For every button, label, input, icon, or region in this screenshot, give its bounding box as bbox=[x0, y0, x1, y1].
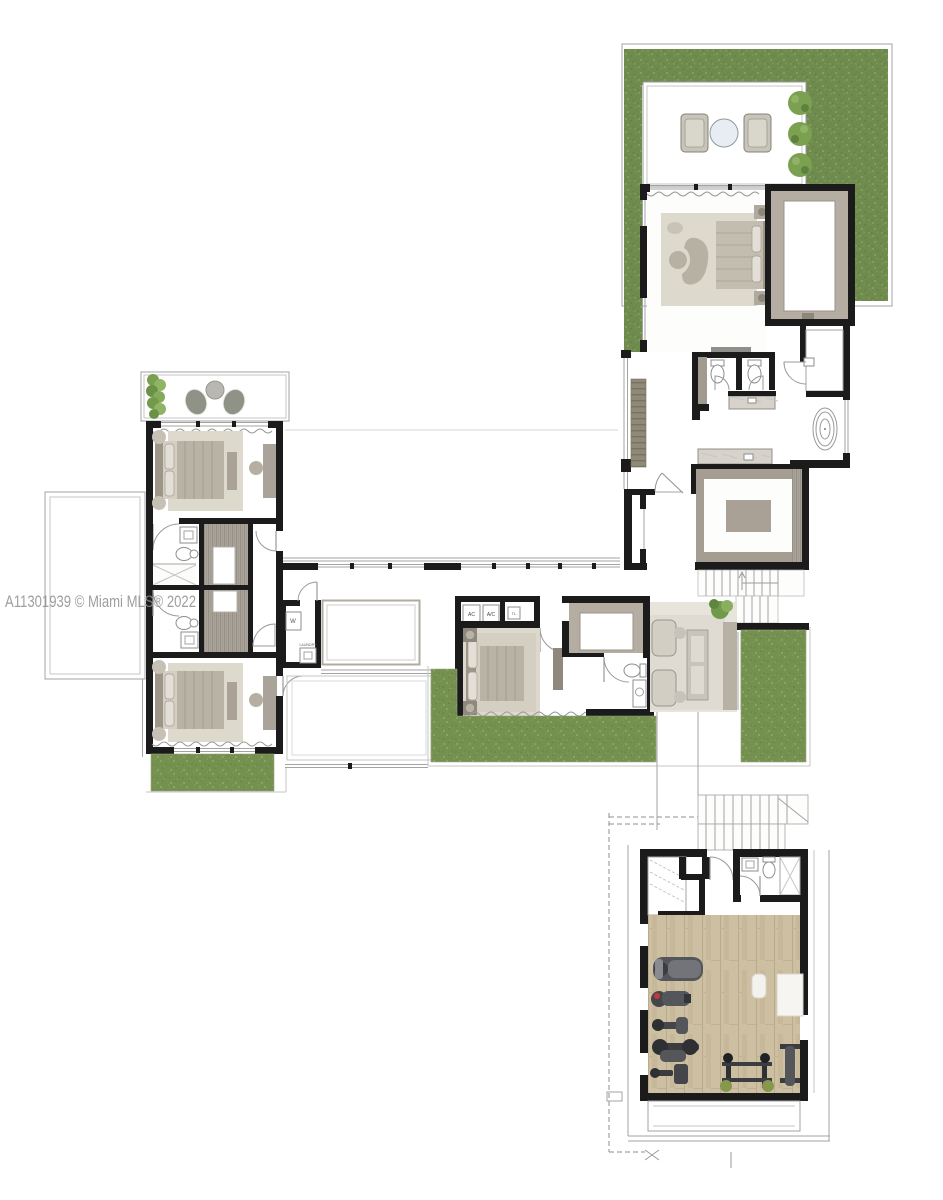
svg-text:TL: TL bbox=[512, 611, 517, 616]
svg-text:A/C: A/C bbox=[487, 612, 496, 618]
svg-text:LAUNDRY: LAUNDRY bbox=[299, 643, 317, 647]
svg-text:A11301939 © Miami MLS® 2022: A11301939 © Miami MLS® 2022 bbox=[5, 593, 196, 611]
svg-text:W: W bbox=[290, 619, 296, 625]
svg-text:AC: AC bbox=[468, 612, 475, 618]
